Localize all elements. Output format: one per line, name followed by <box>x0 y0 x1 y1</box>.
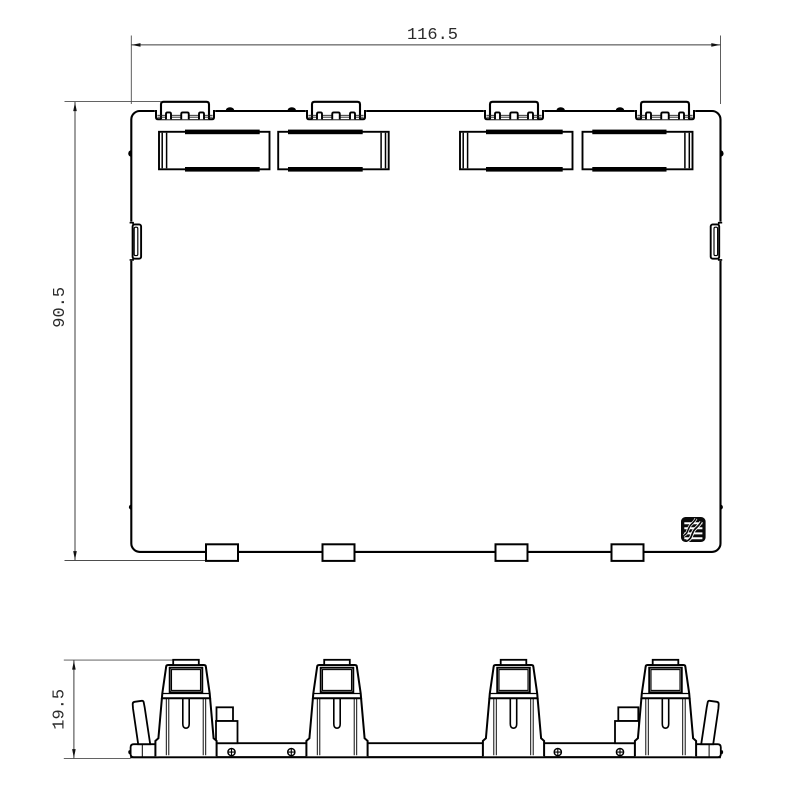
svg-text:90.5: 90.5 <box>51 287 70 328</box>
svg-text:116.5: 116.5 <box>407 26 458 45</box>
svg-text:19.5: 19.5 <box>51 689 70 730</box>
